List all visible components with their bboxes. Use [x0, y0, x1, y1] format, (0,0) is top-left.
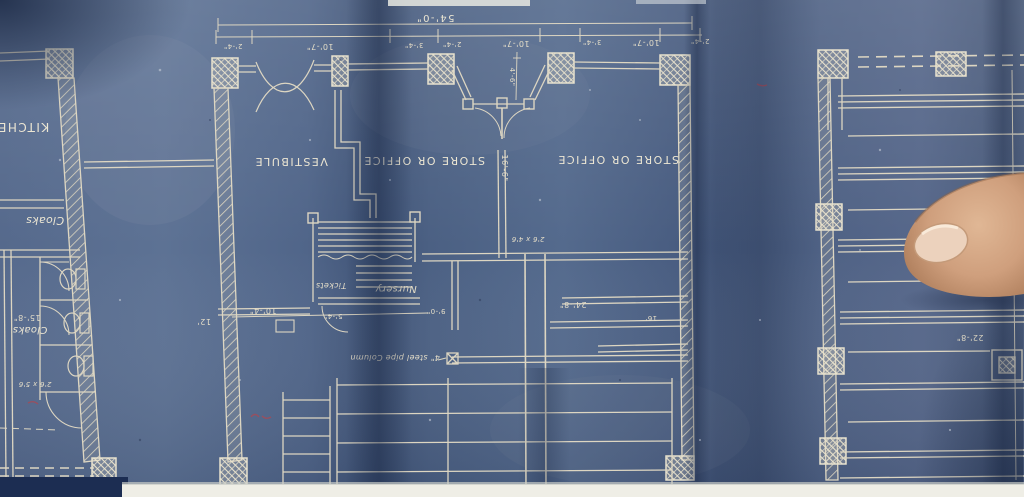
dim-4-6: 4'-6" — [508, 67, 516, 86]
room-label-cloaks-upper: Cloaks — [26, 214, 64, 227]
dim-5-4: 5'-4" — [323, 312, 342, 320]
dim-seg-1: 10'-7" — [306, 42, 333, 51]
room-label-store-right: STORE OR OFFICE — [557, 153, 679, 166]
dim-15-8: 15'-8" — [13, 313, 40, 322]
dim-seg-5: 3'-4" — [582, 38, 601, 46]
dim-16-6: 16'-6" — [500, 154, 509, 181]
dim-seg-4: 10'-7" — [502, 39, 529, 48]
blueprint-photo: KITCHEN Cloaks 15'-8" Cloaks 2'6 x 5'6 5… — [0, 0, 1024, 497]
room-label-tickets: Tickets — [316, 281, 346, 290]
note-cloak-size: 2'6 x 5'6 — [18, 380, 51, 388]
room-label-vestibule: VESTIBULE — [254, 155, 328, 168]
note-size: 2'6 x 4'6 — [511, 235, 544, 243]
dim-seg-0: 2'-4" — [223, 42, 242, 50]
dim-24-8: 24'-8" — [559, 300, 586, 309]
dim-12: 12' — [197, 317, 211, 326]
room-label-kitchen: KITCHEN — [0, 120, 49, 134]
dim-9-0: 9'-0" — [426, 307, 445, 315]
dim-seg-3: 2'-4" — [442, 40, 461, 48]
dim-10-4: 10'-4" — [249, 306, 276, 315]
dim-16: 16' — [645, 314, 657, 322]
room-label-cloaks-lower: Cloaks — [13, 324, 48, 335]
dim-seg-6: 10'-7" — [632, 38, 659, 47]
dim-overall: 54'-0" — [415, 12, 454, 23]
blueprint-svg: KITCHEN Cloaks 15'-8" Cloaks 2'6 x 5'6 5… — [0, 0, 1024, 497]
